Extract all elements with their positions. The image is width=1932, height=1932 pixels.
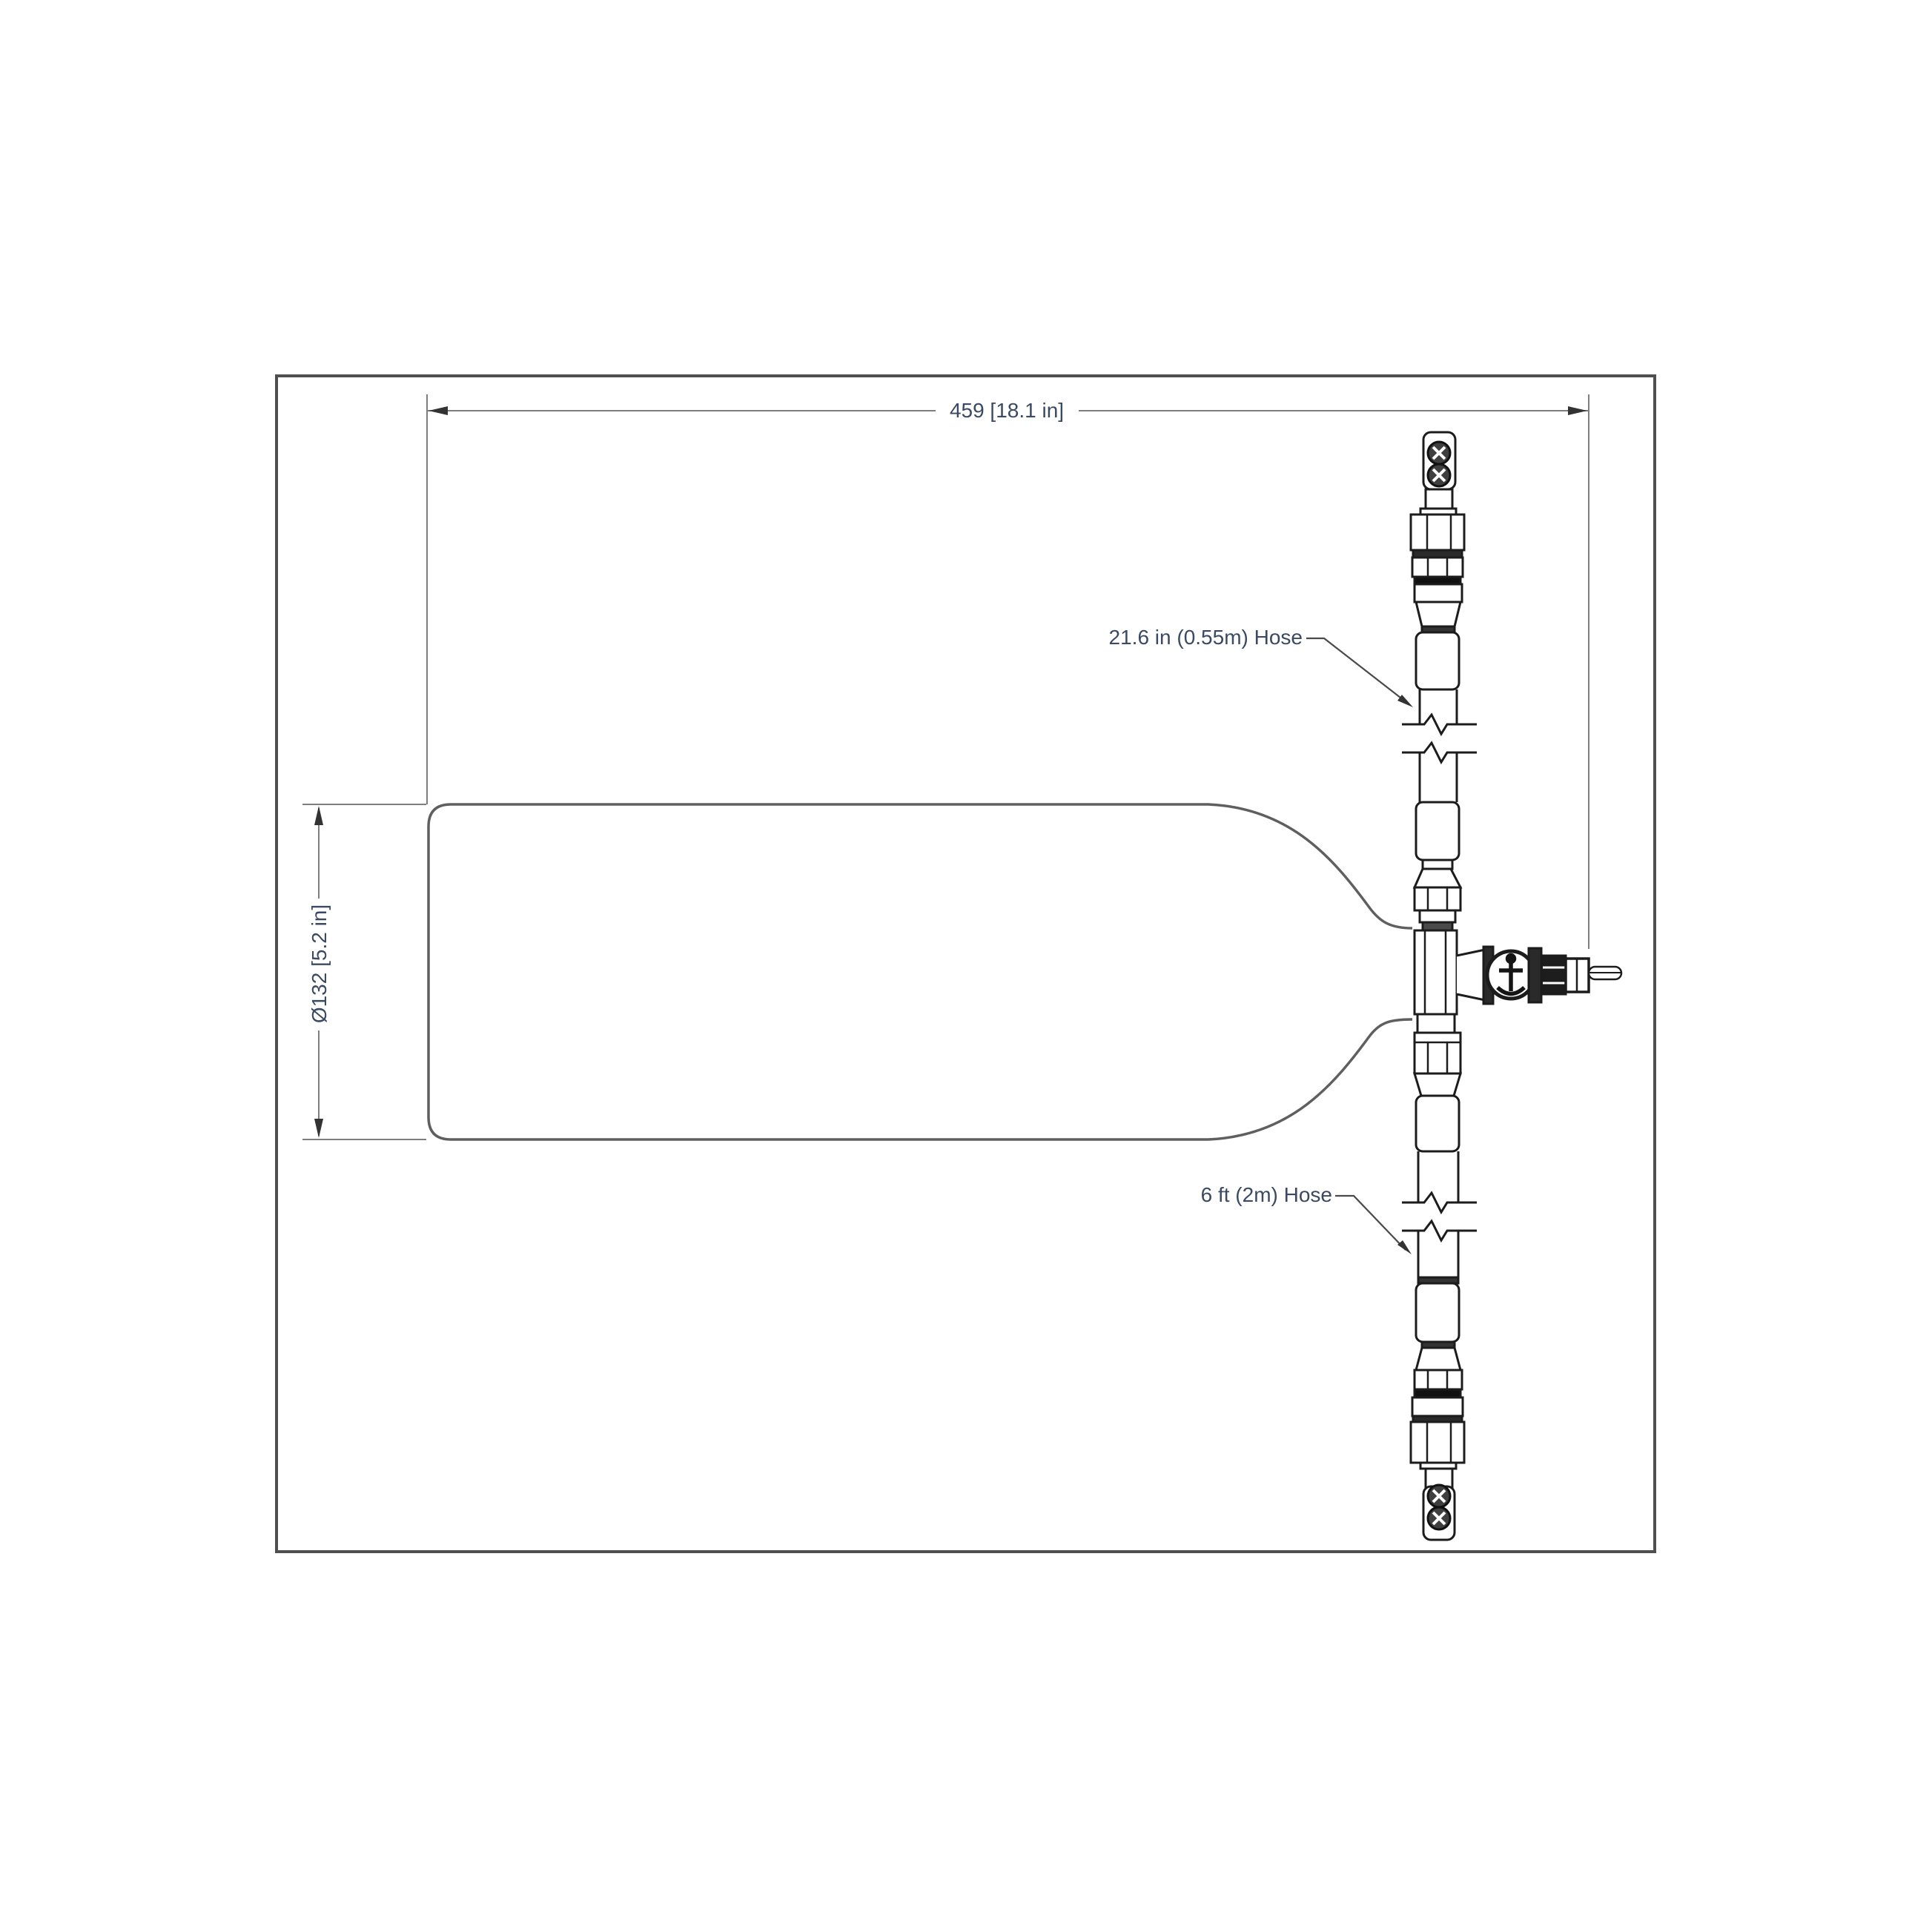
- outlet-hex-nut: [1543, 956, 1566, 994]
- lower-valve-fitting: [1415, 1014, 1460, 1151]
- wheel-bracket-right: [1529, 948, 1541, 1002]
- hose-short-label: 21.6 in (0.55m) Hose: [1109, 626, 1303, 649]
- technical-drawing: 459 [18.1 in] Ø132 [5.2 in] 21.6 in (0.5…: [0, 0, 1932, 1932]
- valve-body: [1415, 930, 1457, 1014]
- hose-long-label: 6 ft (2m) Hose: [1201, 1183, 1332, 1206]
- dim-width-label: 459 [18.1 in]: [950, 399, 1064, 422]
- drawing-canvas: 459 [18.1 in] Ø132 [5.2 in] 21.6 in (0.5…: [0, 0, 1932, 1932]
- dim-diameter-label: Ø132 [5.2 in]: [308, 904, 331, 1023]
